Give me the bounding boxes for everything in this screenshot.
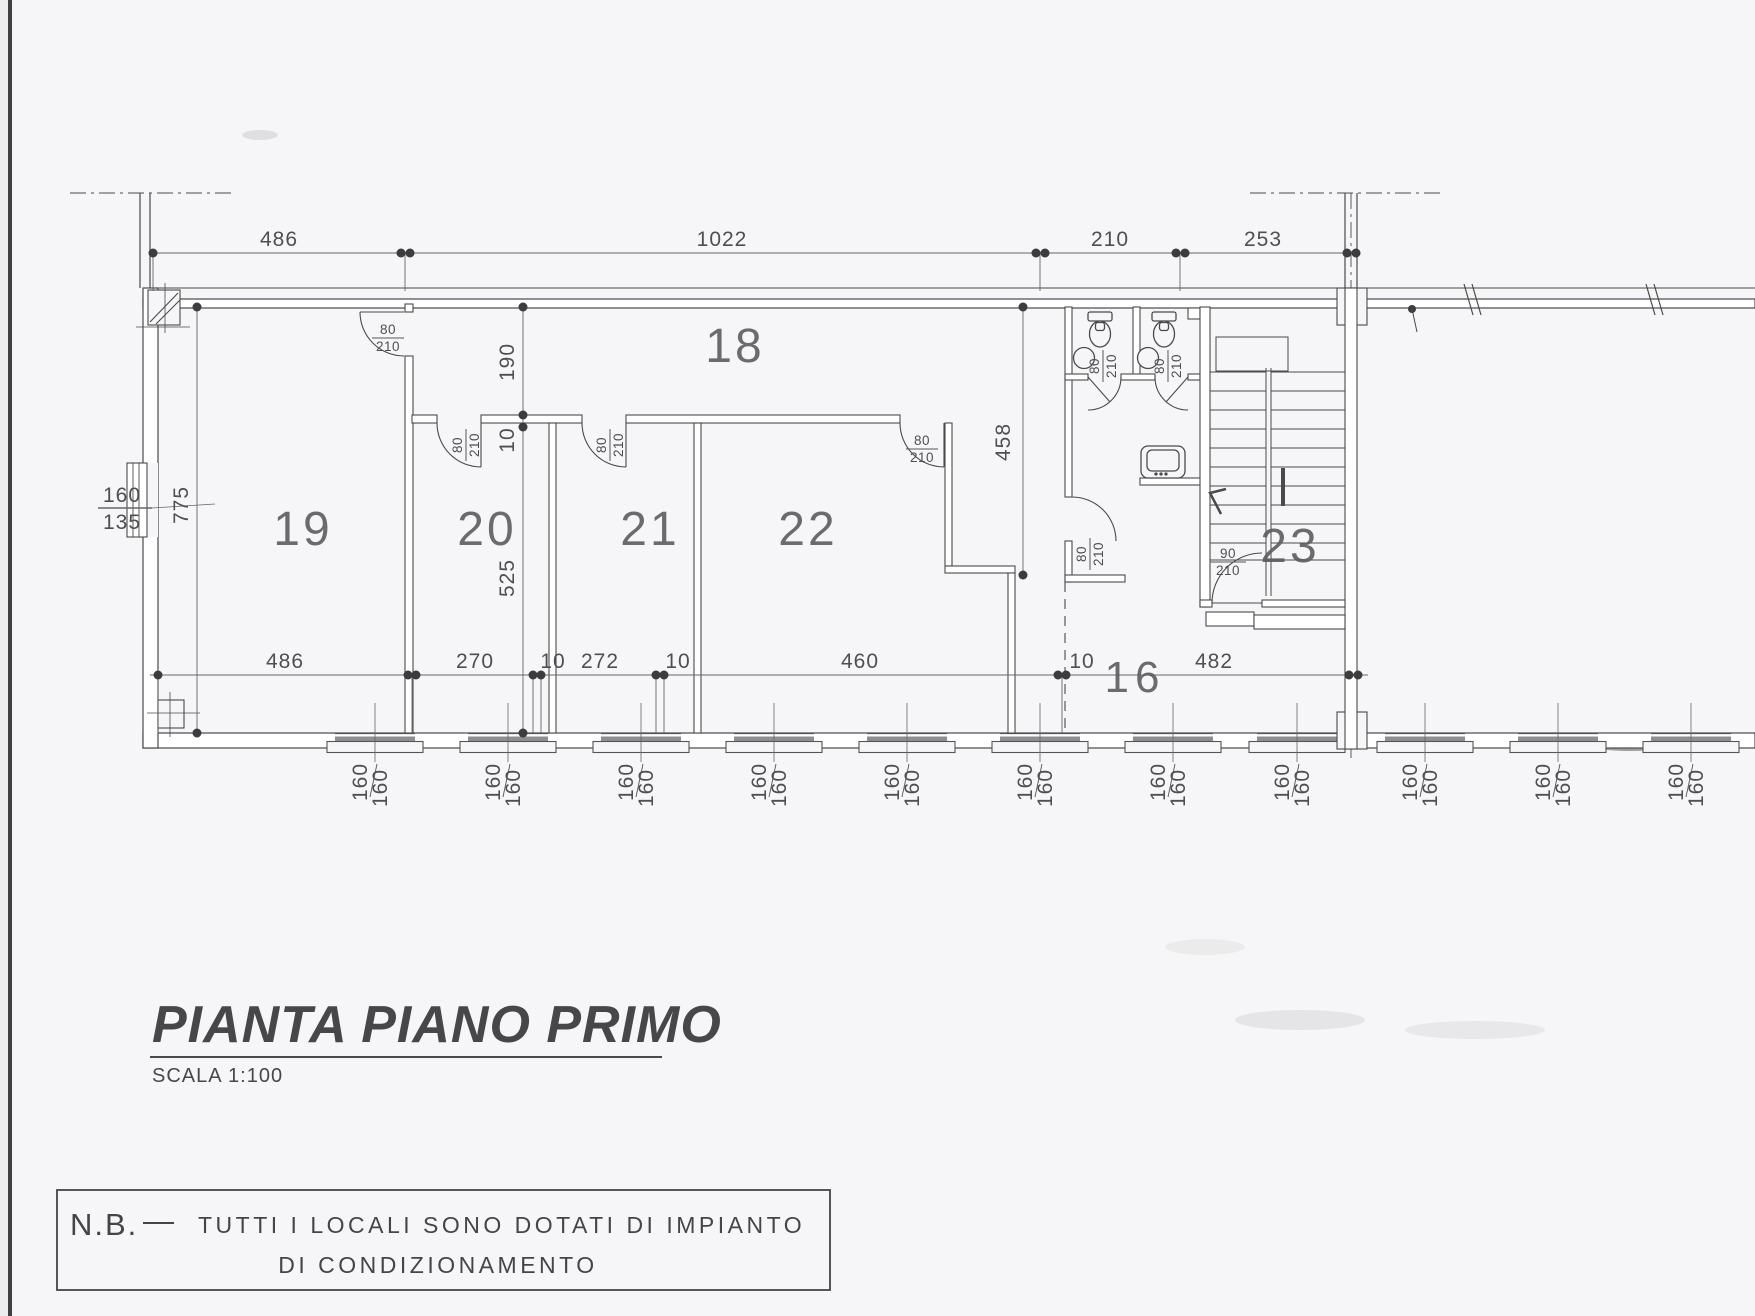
svg-text:80: 80 (1087, 358, 1102, 374)
svg-text:210: 210 (1216, 563, 1240, 578)
svg-text:160: 160 (369, 769, 392, 807)
dim-bot-270: 270 (456, 650, 494, 673)
interior-walls (405, 288, 1357, 749)
room-label-19: 19 (273, 503, 332, 556)
dim-hall-458: 458 (992, 423, 1015, 461)
svg-text:160: 160 (901, 769, 924, 807)
svg-text:210: 210 (611, 433, 626, 457)
note-line-1: TUTTI I LOCALI SONO DOTATI DI IMPIANTO (198, 1212, 805, 1238)
room-label-18: 18 (705, 320, 764, 373)
dim-top-1022: 1022 (697, 228, 748, 251)
svg-text:160: 160 (1291, 769, 1314, 807)
svg-text:160: 160 (1419, 769, 1442, 807)
dim-bot-10b: 10 (665, 650, 690, 673)
toilet-icon (1152, 312, 1176, 347)
title-block: PIANTA PIANO PRIMO SCALA 1:100 (150, 996, 722, 1087)
toilet-icon (1088, 312, 1112, 347)
note-separator: — (143, 1203, 176, 1238)
svg-text:80: 80 (594, 437, 609, 453)
floor-plan-drawing: 486 1022 210 253 486 270 10 272 10 460 1… (0, 0, 1755, 1316)
dim-bot-272: 272 (581, 650, 619, 673)
svg-text:80: 80 (1152, 358, 1167, 374)
room-label-23: 23 (1260, 520, 1319, 573)
svg-text:210: 210 (376, 339, 400, 354)
left-window-height: 135 (103, 511, 141, 534)
room-label-21: 21 (620, 503, 679, 556)
svg-text:160: 160 (1034, 769, 1057, 807)
svg-text:80: 80 (380, 322, 396, 337)
facade-window-labels: 160160 160160 160160 160160 160160 16016… (349, 763, 1708, 807)
note-box: N.B. — TUTTI I LOCALI SONO DOTATI DI IMP… (57, 1190, 830, 1290)
left-window-width: 160 (103, 484, 141, 507)
svg-text:160: 160 (635, 769, 658, 807)
svg-text:90: 90 (1220, 546, 1236, 561)
svg-text:210: 210 (1169, 354, 1184, 378)
svg-text:210: 210 (1104, 354, 1119, 378)
dim-bot-460: 460 (841, 650, 879, 673)
svg-text:160: 160 (502, 769, 525, 807)
drawing-title: PIANTA PIANO PRIMO (152, 996, 722, 1054)
svg-text:80: 80 (450, 437, 465, 453)
room-label-20: 20 (457, 503, 516, 556)
room-label-22: 22 (778, 503, 837, 556)
dim-top-210: 210 (1091, 228, 1129, 251)
note-heading: N.B. (70, 1207, 138, 1242)
door-label-20: 80 210 (450, 429, 482, 461)
dim-left-775: 775 (170, 486, 193, 524)
svg-text:210: 210 (910, 450, 934, 465)
note-line-2: DI CONDIZIONAMENTO (278, 1252, 597, 1278)
room-label-16: 16 (1105, 653, 1166, 702)
svg-text:210: 210 (467, 433, 482, 457)
facade-windows (327, 734, 1739, 753)
door-wc-right (1155, 377, 1188, 410)
dim-top-486: 486 (260, 228, 298, 251)
door-wc-left (1088, 377, 1121, 410)
dim-bot-10c: 10 (1069, 650, 1094, 673)
dim-bot-482: 482 (1195, 650, 1233, 673)
dim-top-253: 253 (1244, 228, 1282, 251)
dim-wall-10: 10 (496, 427, 519, 452)
svg-text:210: 210 (1091, 542, 1106, 566)
stair-start-flag (1210, 489, 1226, 514)
door-bath-lobby (1072, 497, 1116, 541)
scan-edge-artifacts (0, 0, 1678, 1316)
svg-text:160: 160 (1685, 769, 1708, 807)
drawing-scale: SCALA 1:100 (152, 1065, 283, 1087)
sanitary-fixtures (1074, 312, 1186, 478)
axis-centerlines (70, 193, 1442, 758)
dim-room-525: 525 (496, 559, 519, 597)
door-label-19: 80 210 (372, 322, 404, 354)
dim-bot-486: 486 (266, 650, 304, 673)
door-label-21: 80 210 (594, 429, 626, 461)
svg-text:160: 160 (1167, 769, 1190, 807)
svg-text:160: 160 (768, 769, 791, 807)
dim-corridor-190: 190 (496, 343, 519, 381)
dim-bot-10a: 10 (540, 650, 565, 673)
door-label-23: 90 210 (1210, 546, 1246, 578)
scanned-floor-plan-page: 486 1022 210 253 486 270 10 272 10 460 1… (0, 0, 1755, 1316)
sink-icon (1141, 446, 1185, 478)
door-label-bath-lobby: 80 210 (1074, 538, 1106, 570)
svg-text:80: 80 (1074, 546, 1089, 562)
svg-text:80: 80 (914, 433, 930, 448)
door-label-22: 80 210 (906, 433, 938, 465)
svg-text:160: 160 (1552, 769, 1575, 807)
